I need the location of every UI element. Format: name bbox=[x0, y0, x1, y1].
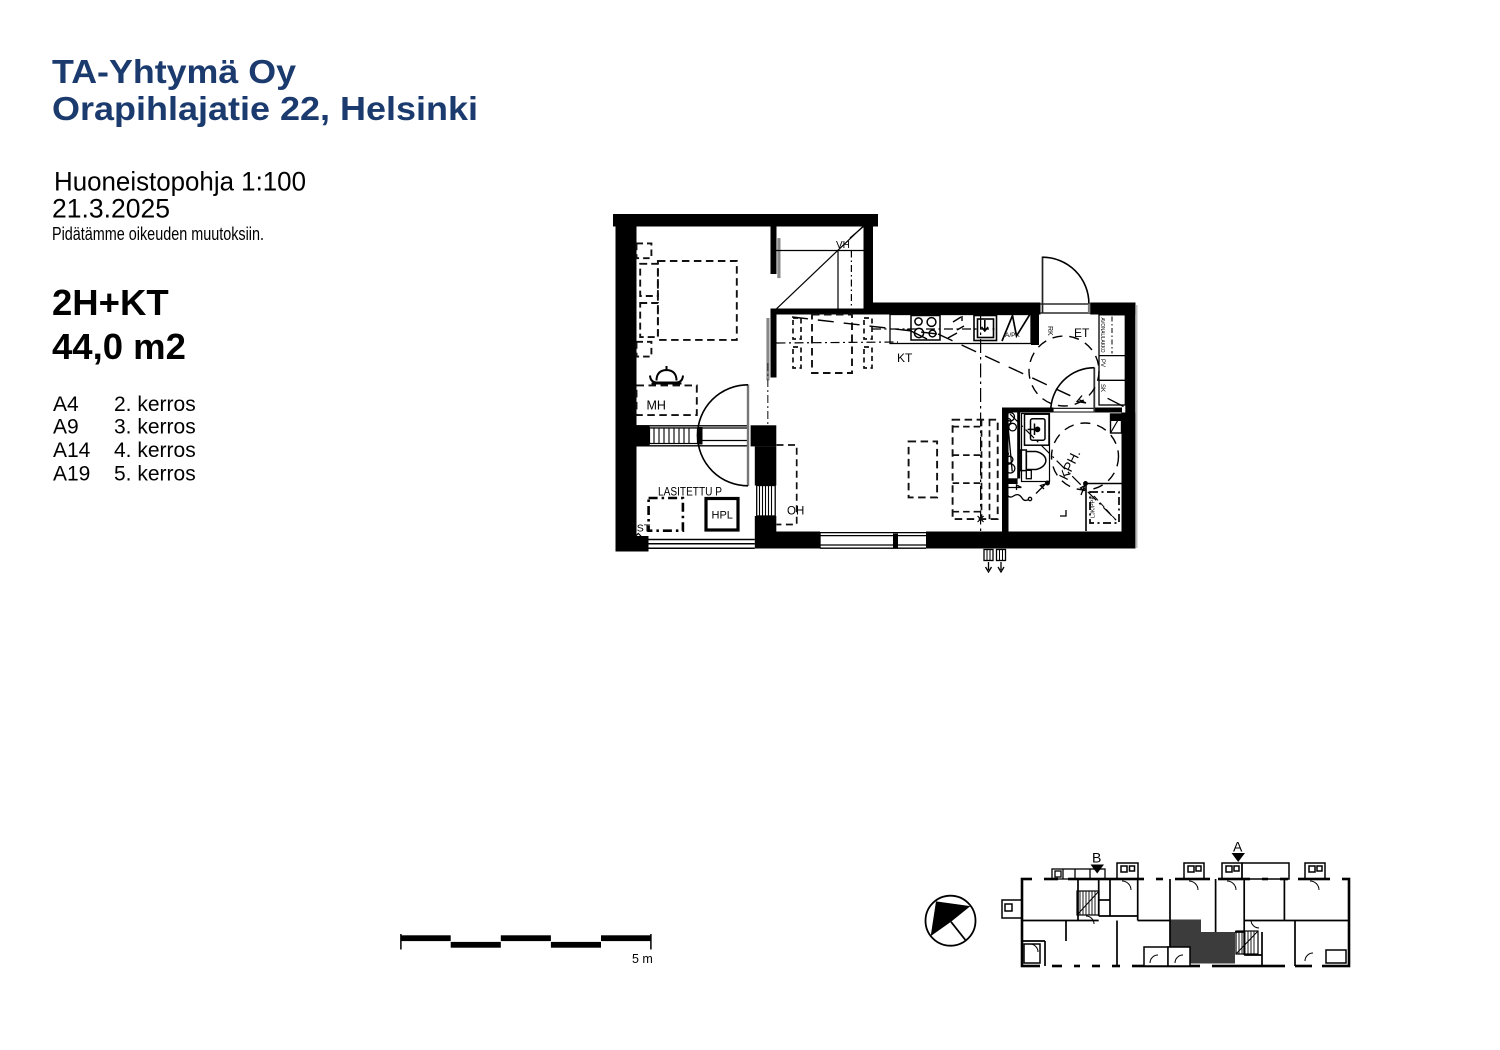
svg-text:LJK/PPK: LJK/PPK bbox=[1091, 496, 1097, 518]
svg-text:TA-Yhtymä Oy: TA-Yhtymä Oy bbox=[52, 53, 297, 90]
svg-text:2. kerros: 2. kerros bbox=[114, 393, 196, 416]
svg-text:A: A bbox=[1233, 839, 1243, 855]
svg-text:A4: A4 bbox=[53, 393, 79, 416]
svg-text:44,0 m2: 44,0 m2 bbox=[52, 326, 186, 367]
svg-text:KT: KT bbox=[897, 351, 913, 365]
svg-text:SK: SK bbox=[1099, 384, 1105, 392]
svg-text:HPL: HPL bbox=[712, 510, 733, 522]
svg-text:4. kerros: 4. kerros bbox=[114, 439, 196, 462]
svg-text:Pidätämme oikeuden muutoksiin.: Pidätämme oikeuden muutoksiin. bbox=[52, 223, 264, 244]
svg-text:3. kerros: 3. kerros bbox=[114, 416, 196, 439]
svg-text:21.3.2025: 21.3.2025 bbox=[52, 194, 170, 224]
svg-text:B: B bbox=[1092, 850, 1101, 866]
svg-text:Huoneistopohja 1:100: Huoneistopohja 1:100 bbox=[54, 167, 306, 197]
svg-text:A19: A19 bbox=[53, 463, 90, 486]
svg-text:OH: OH bbox=[787, 506, 804, 518]
svg-text:RK: RK bbox=[1046, 326, 1053, 336]
svg-text:MH: MH bbox=[647, 399, 666, 413]
svg-text:5. kerros: 5. kerros bbox=[114, 463, 196, 486]
svg-text:A/PK: A/PK bbox=[1005, 332, 1020, 339]
svg-text:PV: PV bbox=[1099, 359, 1105, 367]
svg-text:Orapihlajatie 22, Helsinki: Orapihlajatie 22, Helsinki bbox=[52, 90, 478, 127]
svg-text:A9: A9 bbox=[53, 416, 79, 439]
svg-text:VH: VH bbox=[836, 240, 850, 251]
svg-text:ST: ST bbox=[637, 523, 651, 535]
svg-text:5 m: 5 m bbox=[632, 952, 653, 966]
svg-text:A14: A14 bbox=[53, 439, 91, 462]
svg-text:AVONAULAKKO: AVONAULAKKO bbox=[1099, 318, 1105, 354]
svg-text:2H+KT: 2H+KT bbox=[52, 282, 169, 323]
svg-text:LASITETTU P: LASITETTU P bbox=[658, 487, 722, 499]
